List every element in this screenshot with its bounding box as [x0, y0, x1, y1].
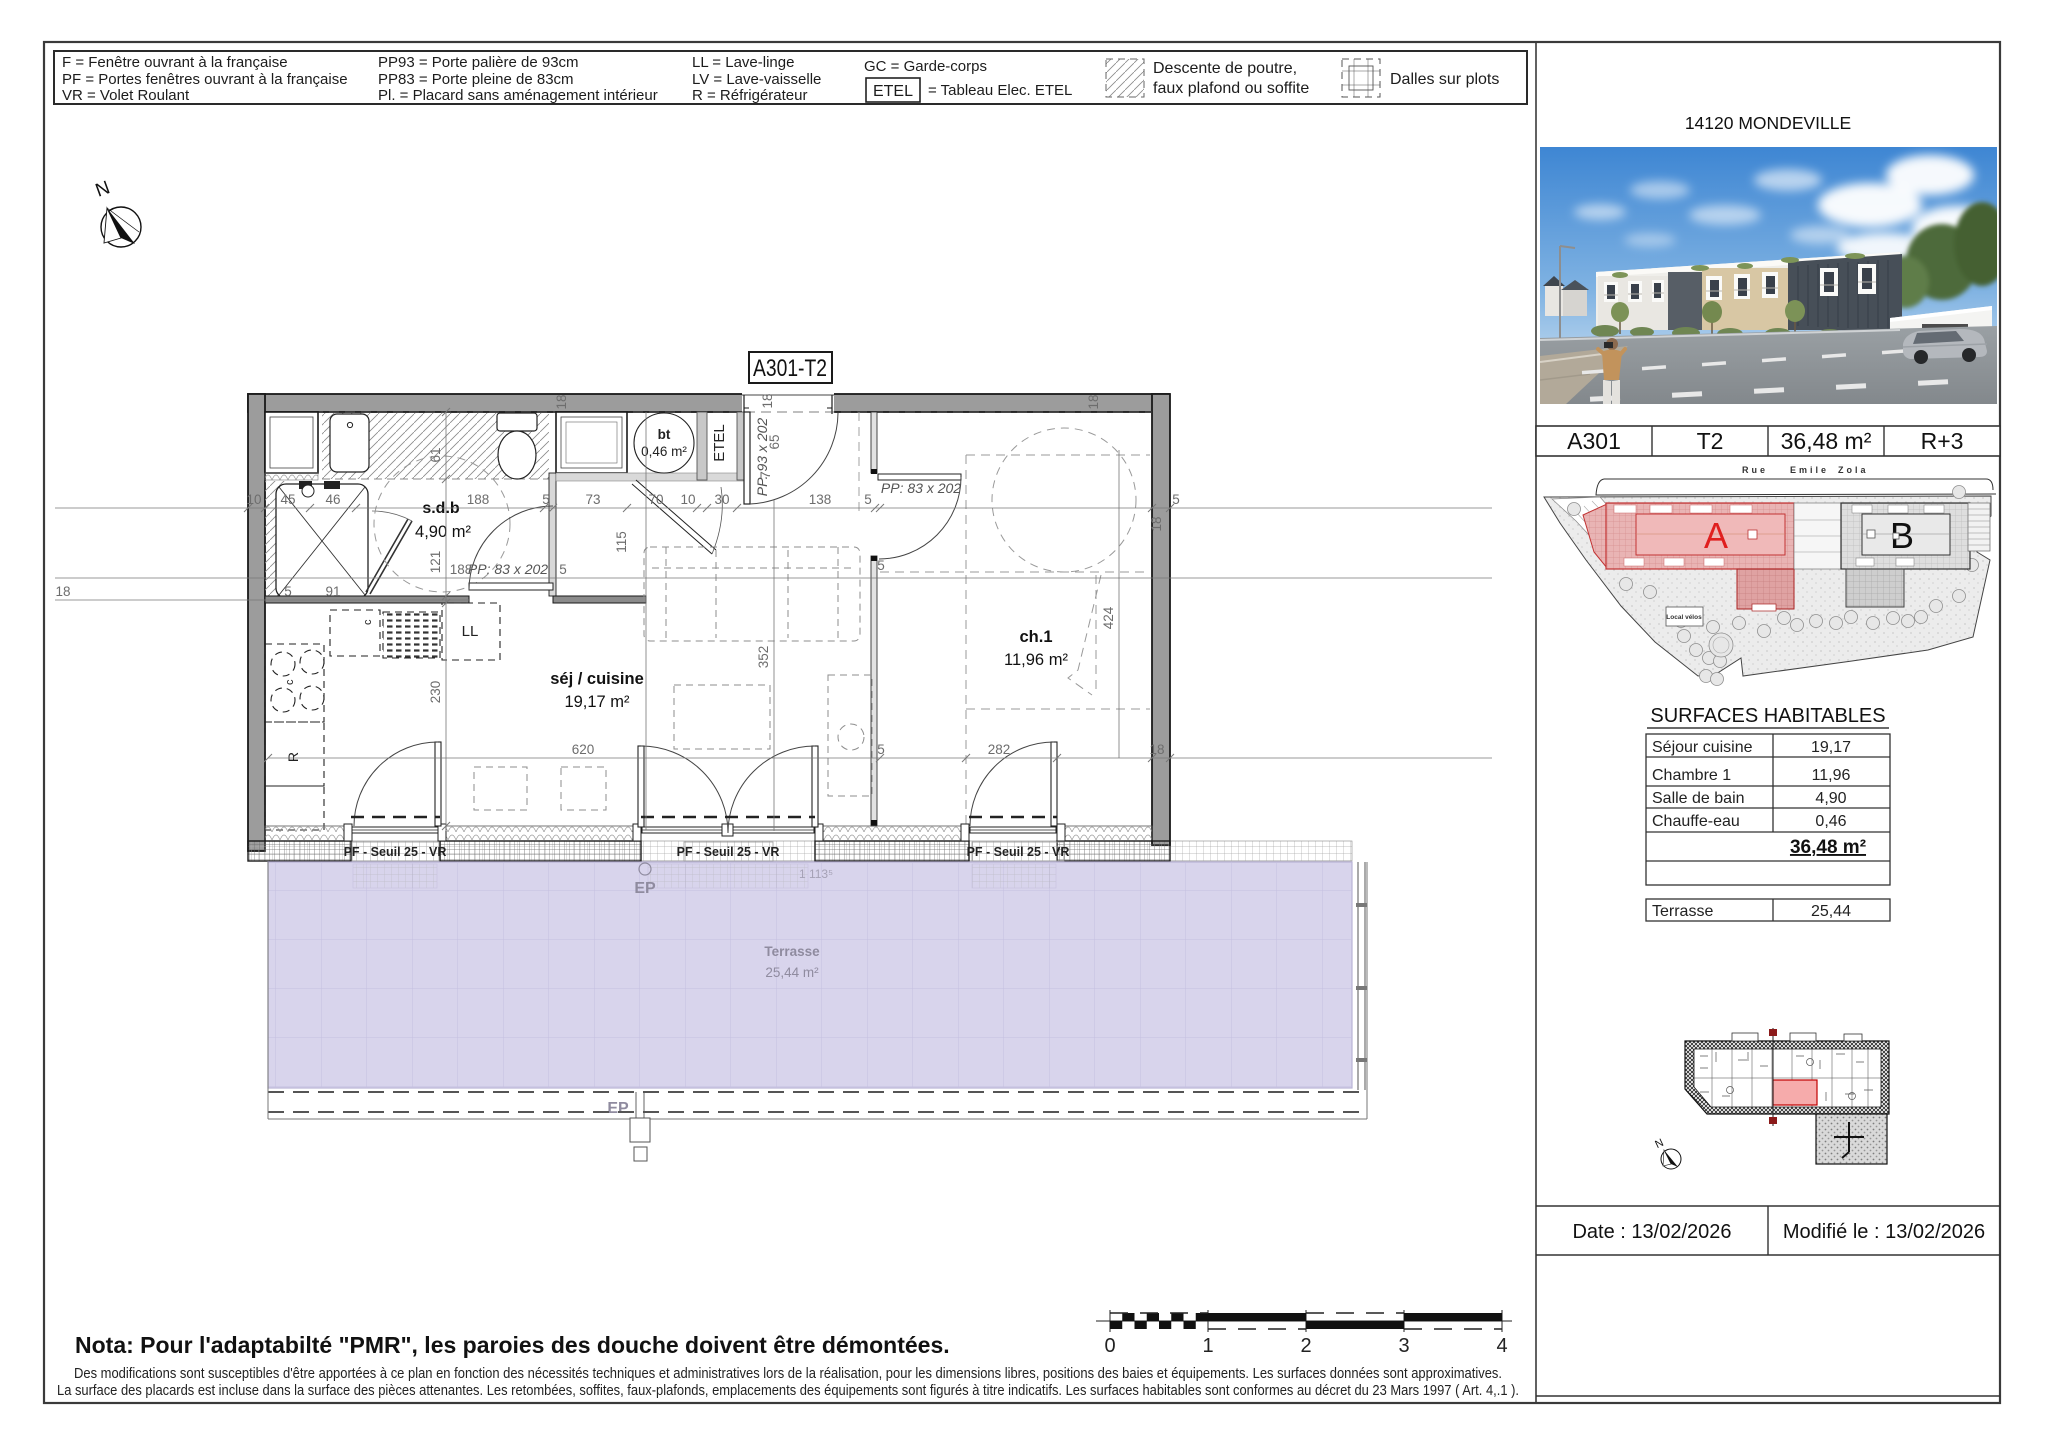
svg-text:LL = Lave-linge: LL = Lave-linge — [692, 54, 794, 71]
svg-text:36,48 m²: 36,48 m² — [1781, 428, 1872, 454]
svg-text:ETEL: ETEL — [873, 83, 913, 100]
svg-text:30: 30 — [714, 492, 729, 507]
svg-text:0,46 m²: 0,46 m² — [641, 444, 687, 459]
svg-text:0,46: 0,46 — [1815, 813, 1846, 830]
svg-text:LV = Lave-vaisselle: LV = Lave-vaisselle — [692, 71, 821, 88]
svg-text:121: 121 — [428, 551, 443, 574]
svg-text:Emile: Emile — [1790, 465, 1829, 475]
svg-text:PP83 = Porte pleine de 83cm: PP83 = Porte pleine de 83cm — [378, 71, 574, 88]
svg-text:18: 18 — [1149, 516, 1164, 531]
svg-text:4,90: 4,90 — [1815, 790, 1846, 807]
svg-text:PP. 93 x 202: PP. 93 x 202 — [754, 418, 770, 497]
svg-text:19,17 m²: 19,17 m² — [564, 693, 630, 711]
svg-text:11,96: 11,96 — [1812, 767, 1851, 784]
svg-text:18: 18 — [760, 393, 775, 408]
svg-text:5: 5 — [877, 558, 885, 573]
svg-text:70: 70 — [648, 492, 663, 507]
svg-text:PF - Seuil 25 - VR: PF - Seuil 25 - VR — [677, 845, 780, 859]
svg-text:séj / cuisine: séj / cuisine — [550, 670, 644, 688]
svg-text:Pl. = Placard sans aménagement: Pl. = Placard sans aménagement intérieur — [378, 87, 658, 104]
svg-text:10: 10 — [680, 492, 695, 507]
svg-text:PF = Portes fenêtres ouvrant à: PF = Portes fenêtres ouvrant à la frança… — [62, 71, 348, 88]
svg-text:2: 2 — [1300, 1335, 1311, 1357]
svg-text:5: 5 — [284, 584, 292, 599]
svg-text:Date : 13/02/2026: Date : 13/02/2026 — [1572, 1221, 1731, 1243]
svg-text:91: 91 — [325, 584, 340, 599]
svg-text:F = Fenêtre ouvrant à la franç: F = Fenêtre ouvrant à la française — [62, 54, 288, 71]
svg-text:115: 115 — [614, 531, 629, 553]
svg-text:25,44: 25,44 — [1811, 903, 1851, 920]
svg-text:EP: EP — [607, 1100, 629, 1117]
svg-text:65: 65 — [767, 434, 782, 449]
svg-text:La surface des placards est in: La surface des placards est incluse dans… — [57, 1382, 1519, 1399]
svg-text:3: 3 — [1398, 1335, 1409, 1357]
svg-text:T2: T2 — [1697, 428, 1724, 454]
svg-text:230: 230 — [428, 681, 443, 704]
svg-text:620: 620 — [572, 742, 595, 757]
svg-text:Descente de poutre,: Descente de poutre, — [1153, 60, 1297, 77]
svg-text:Salle de bain: Salle de bain — [1652, 790, 1745, 807]
svg-text:5: 5 — [864, 492, 872, 507]
svg-text:138: 138 — [809, 492, 832, 507]
svg-text:188: 188 — [450, 562, 473, 577]
svg-text:Chauffe-eau: Chauffe-eau — [1652, 813, 1740, 830]
svg-text:18: 18 — [1149, 742, 1164, 757]
svg-text:0: 0 — [1104, 1335, 1115, 1357]
svg-text:Terrasse: Terrasse — [764, 944, 820, 959]
svg-text:5: 5 — [542, 492, 550, 507]
svg-text:18: 18 — [554, 394, 569, 409]
svg-text:c: c — [284, 679, 296, 685]
svg-text:14120 MONDEVILLE: 14120 MONDEVILLE — [1685, 113, 1851, 133]
svg-text:GC = Garde-corps: GC = Garde-corps — [864, 58, 987, 75]
svg-text:73: 73 — [585, 492, 600, 507]
svg-text:R = Réfrigérateur: R = Réfrigérateur — [692, 87, 807, 104]
svg-text:282: 282 — [988, 742, 1011, 757]
svg-text:EP: EP — [634, 880, 656, 897]
svg-text:11,96 m²: 11,96 m² — [1004, 651, 1068, 669]
svg-text:A301: A301 — [1567, 428, 1621, 454]
svg-text:352: 352 — [756, 646, 771, 669]
svg-text:faux plafond ou soffite: faux plafond ou soffite — [1153, 80, 1309, 97]
svg-text:PP: 83 x 202: PP: 83 x 202 — [881, 480, 961, 496]
svg-text:Chambre 1: Chambre 1 — [1652, 767, 1731, 784]
svg-text:424: 424 — [1101, 606, 1116, 629]
svg-text:Terrasse: Terrasse — [1652, 903, 1713, 920]
svg-text:SURFACES HABITABLES: SURFACES HABITABLES — [1650, 705, 1885, 727]
svg-text:19,17: 19,17 — [1811, 739, 1851, 756]
svg-text:45: 45 — [280, 492, 295, 507]
svg-text:PP: 83 x 202: PP: 83 x 202 — [468, 561, 548, 577]
svg-text:R: R — [285, 752, 301, 762]
svg-text:PP93 = Porte palière de 93cm: PP93 = Porte palière de 93cm — [378, 54, 579, 71]
svg-text:PF - Seuil 25 - VR: PF - Seuil 25 - VR — [344, 845, 447, 859]
svg-text:46: 46 — [325, 492, 340, 507]
svg-text:4: 4 — [1496, 1335, 1507, 1357]
svg-text:= Tableau Elec. ETEL: = Tableau Elec. ETEL — [928, 82, 1072, 99]
svg-text:61: 61 — [428, 447, 443, 462]
svg-text:7: 7 — [758, 471, 773, 479]
svg-text:A301-T2: A301-T2 — [753, 355, 827, 382]
svg-text:Séjour cuisine: Séjour cuisine — [1652, 739, 1753, 756]
svg-text:R+3: R+3 — [1921, 428, 1964, 454]
svg-text:Nota: Pour l'adaptabilté "PMR": Nota: Pour l'adaptabilté "PMR", les paro… — [75, 1332, 950, 1358]
svg-text:LL: LL — [462, 623, 479, 640]
svg-text:1: 1 — [1202, 1335, 1213, 1357]
svg-text:c: c — [362, 619, 374, 625]
svg-text:4,90 m²: 4,90 m² — [415, 523, 471, 541]
svg-text:Zola: Zola — [1838, 465, 1869, 475]
svg-text:VR = Volet Roulant: VR = Volet Roulant — [62, 87, 190, 104]
svg-text:A: A — [1704, 515, 1728, 556]
svg-text:Rue: Rue — [1742, 465, 1768, 475]
svg-text:36,48 m²: 36,48 m² — [1790, 837, 1866, 858]
svg-text:18: 18 — [1086, 394, 1101, 409]
svg-text:1 113⁵: 1 113⁵ — [799, 867, 833, 881]
svg-text:188: 188 — [467, 492, 490, 507]
svg-text:s.d.b: s.d.b — [422, 500, 460, 517]
svg-text:Des modifications sont suscept: Des modifications sont susceptibles d'êt… — [74, 1365, 1502, 1382]
svg-text:Local vélos: Local vélos — [1666, 614, 1702, 621]
svg-text:bt: bt — [658, 427, 671, 442]
svg-text:Modifié le : 13/02/2026: Modifié le : 13/02/2026 — [1783, 1221, 1985, 1243]
svg-text:18: 18 — [55, 584, 70, 599]
svg-text:ch.1: ch.1 — [1019, 628, 1052, 646]
svg-text:Dalles sur plots: Dalles sur plots — [1390, 71, 1499, 88]
svg-text:ETEL: ETEL — [711, 424, 728, 462]
svg-text:10: 10 — [246, 492, 261, 507]
svg-text:PF - Seuil 25 - VR: PF - Seuil 25 - VR — [967, 845, 1070, 859]
svg-text:25,44 m²: 25,44 m² — [765, 965, 819, 980]
svg-text:5: 5 — [559, 562, 567, 577]
